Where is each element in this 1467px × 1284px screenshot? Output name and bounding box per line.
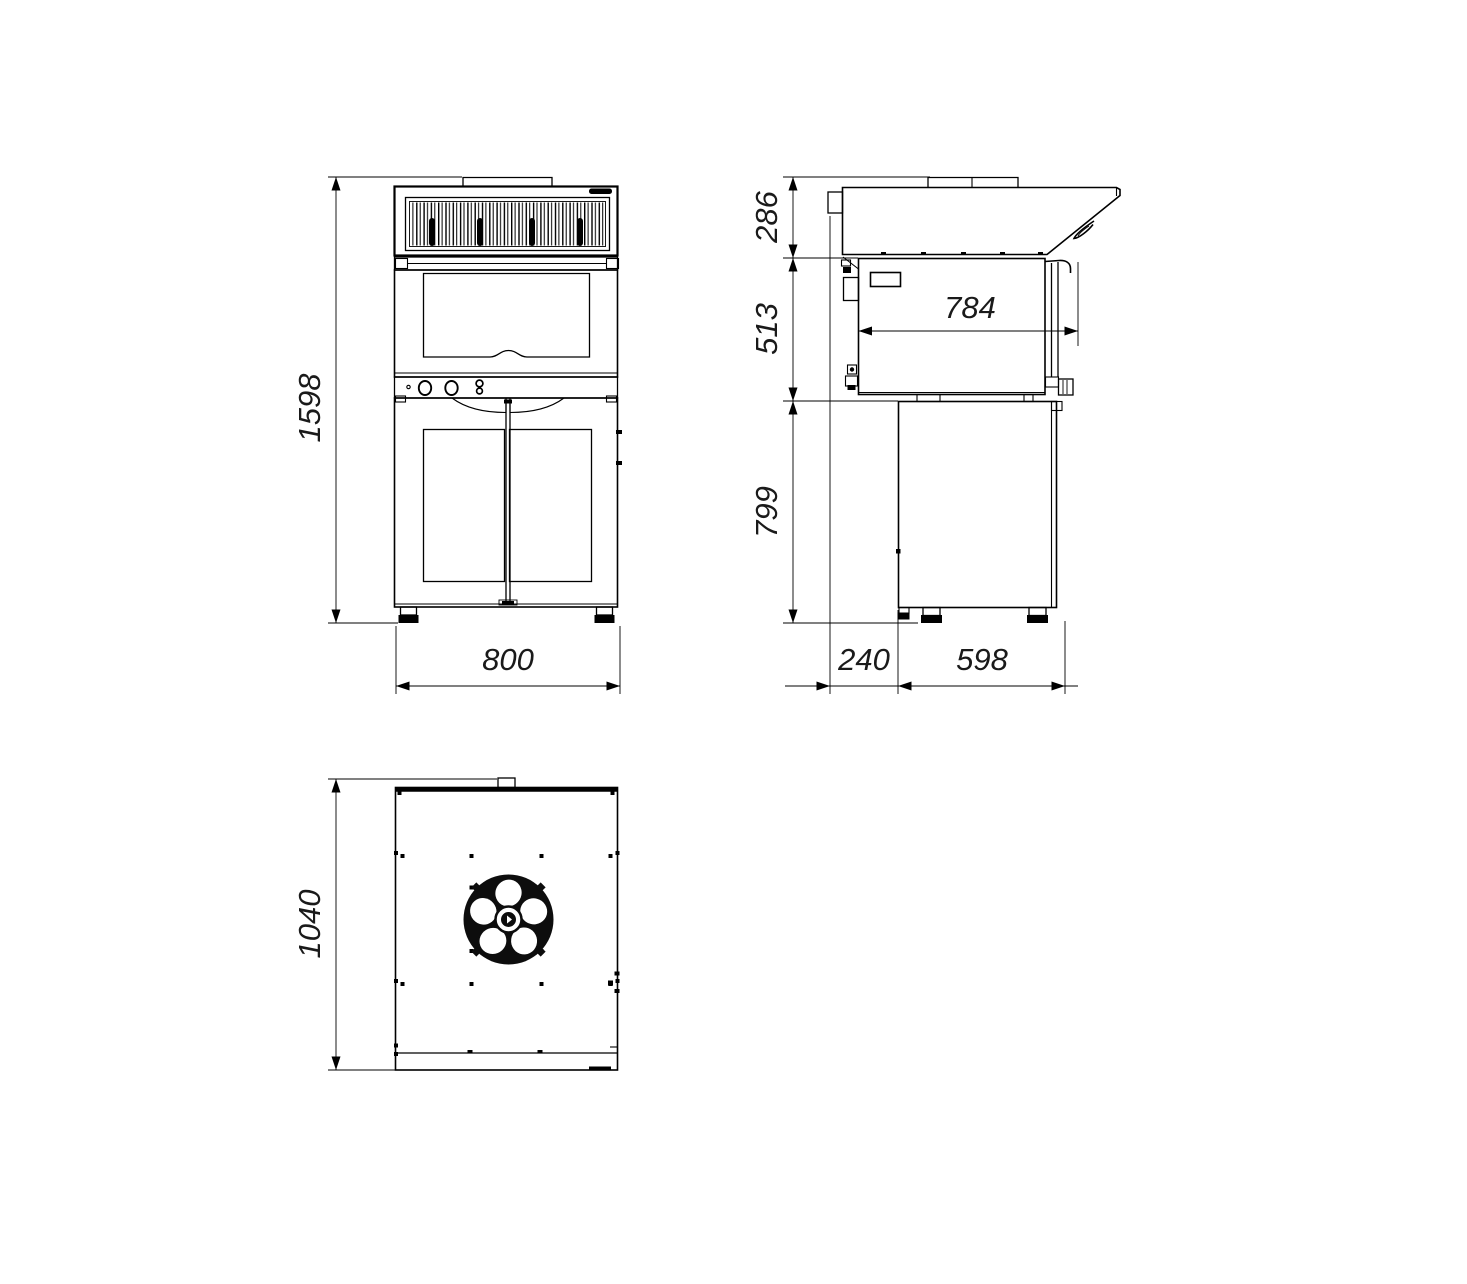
dim-front-height: 1598 [292, 373, 327, 443]
drawing-sheet: 1598 800 [0, 0, 1467, 1284]
hood-grille [406, 198, 610, 251]
name-plate [871, 273, 901, 287]
dim-stand-height: 799 [749, 486, 784, 538]
dim-oven-depth: 784 [944, 290, 996, 325]
control-knob [419, 381, 431, 395]
dim-rear-offset: 240 [837, 642, 890, 677]
hood-bracket [828, 192, 843, 213]
chimney-top [498, 778, 515, 788]
hood-side [843, 188, 1121, 255]
door-handle-cutout [452, 398, 506, 413]
stand-door-panel [510, 430, 592, 582]
side-view [828, 178, 1120, 624]
control-panel [395, 377, 618, 398]
stand-side [896, 402, 1062, 624]
lamp-bar [395, 257, 619, 270]
brand-badge [589, 189, 612, 195]
oven-side [842, 257, 1046, 402]
feet-front [399, 607, 615, 623]
stand-front [395, 396, 623, 607]
side-connection-box [844, 278, 859, 301]
front-view [395, 178, 623, 624]
dim-hood-height: 286 [749, 190, 784, 243]
oven-door-side [1045, 260, 1073, 395]
oven-door-window [424, 274, 590, 358]
fan-impeller [460, 875, 557, 967]
dim-oven-height: 513 [749, 303, 784, 355]
dim-top-depth: 1040 [292, 890, 327, 959]
top-view [394, 778, 620, 1071]
switch-button [477, 388, 483, 394]
chimney-outline [928, 178, 1018, 188]
door-handle-cutout [510, 398, 564, 413]
dim-front-width: 800 [482, 642, 534, 677]
indicator-light [407, 385, 410, 388]
switch-button [476, 380, 483, 387]
stand-door-panel [424, 430, 505, 582]
control-knob [445, 381, 457, 395]
dim-stand-depth: 598 [956, 642, 1008, 677]
oven-door-front [395, 270, 618, 377]
